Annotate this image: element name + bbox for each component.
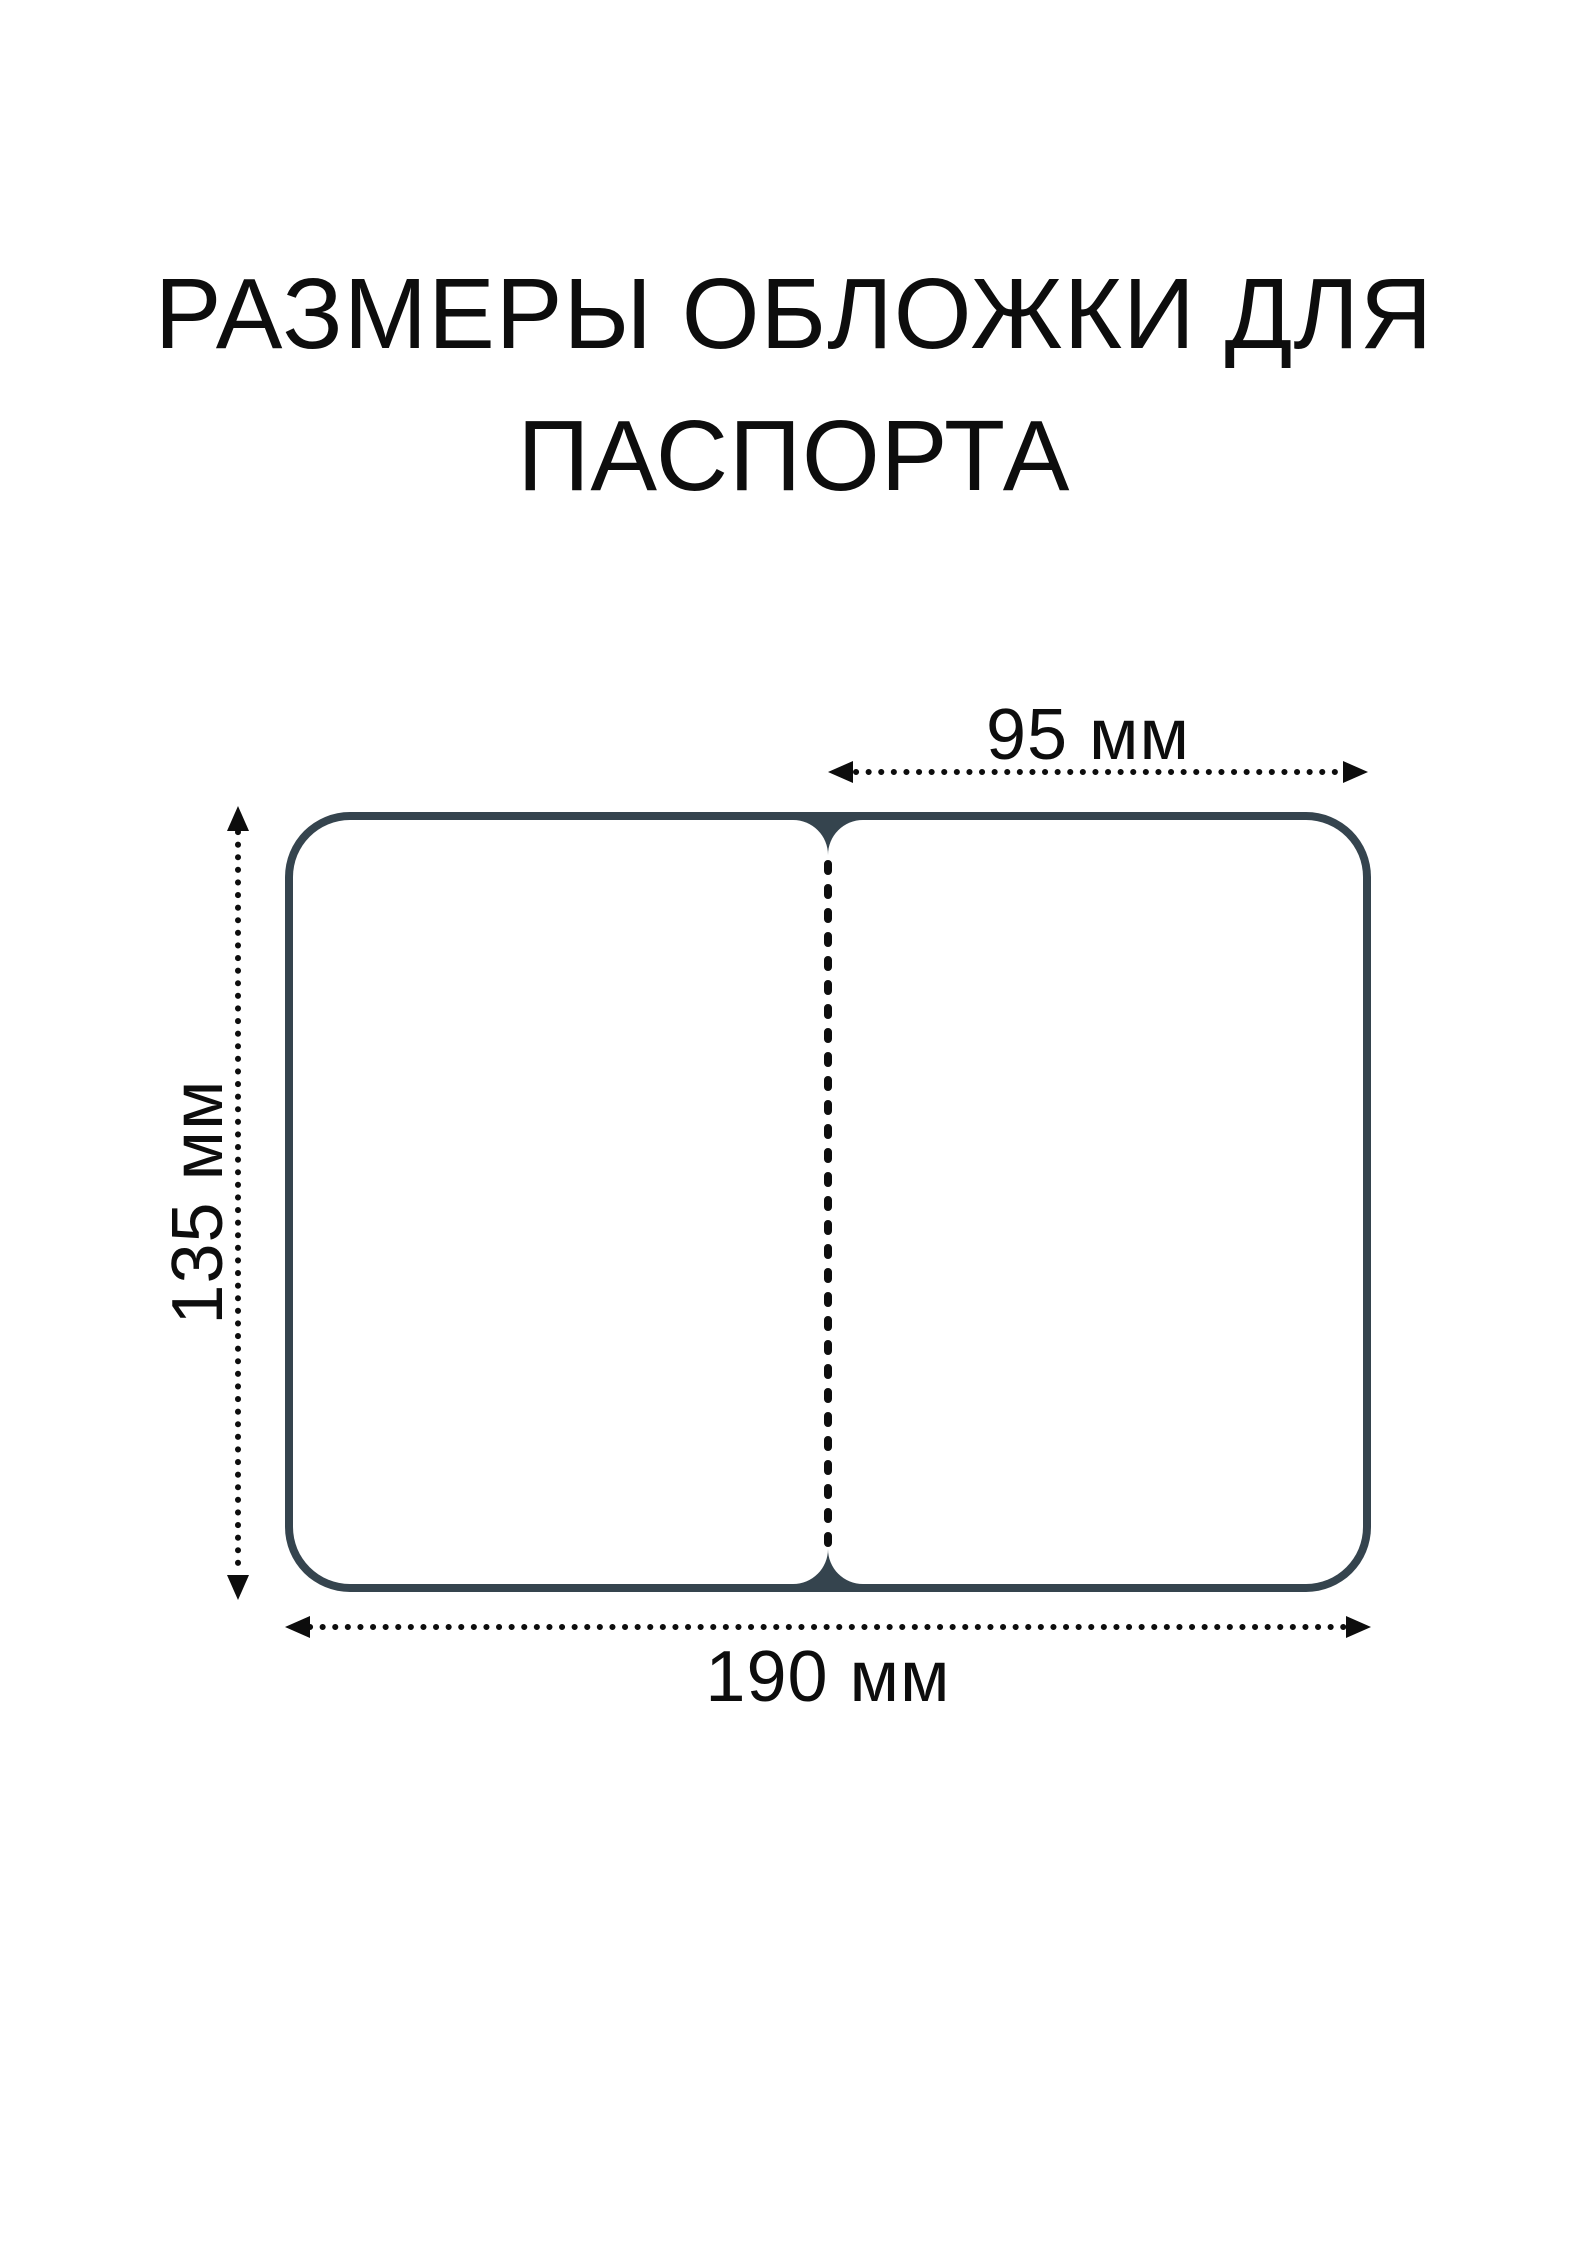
arrow-left-icon: [828, 761, 853, 783]
dimension-arrow-bottom: [285, 1616, 1371, 1638]
cover-right-panel: [828, 820, 1363, 1584]
page: РАЗМЕРЫ ОБЛОЖКИ ДЛЯ ПАСПОРТА: [0, 0, 1587, 2245]
arrow-up-icon: [227, 806, 249, 831]
dimension-label-height: 135 мм: [161, 992, 235, 1412]
arrow-right-icon: [1346, 1616, 1371, 1638]
arrow-right-icon: [1343, 761, 1368, 783]
dimension-label-top-width: 95 мм: [878, 698, 1298, 772]
dimension-label-full-width: 190 мм: [618, 1640, 1038, 1714]
arrow-down-icon: [227, 1575, 249, 1600]
cover-left-panel: [293, 820, 828, 1584]
arrow-left-icon: [285, 1616, 310, 1638]
diagram-canvas: [0, 0, 1587, 2245]
